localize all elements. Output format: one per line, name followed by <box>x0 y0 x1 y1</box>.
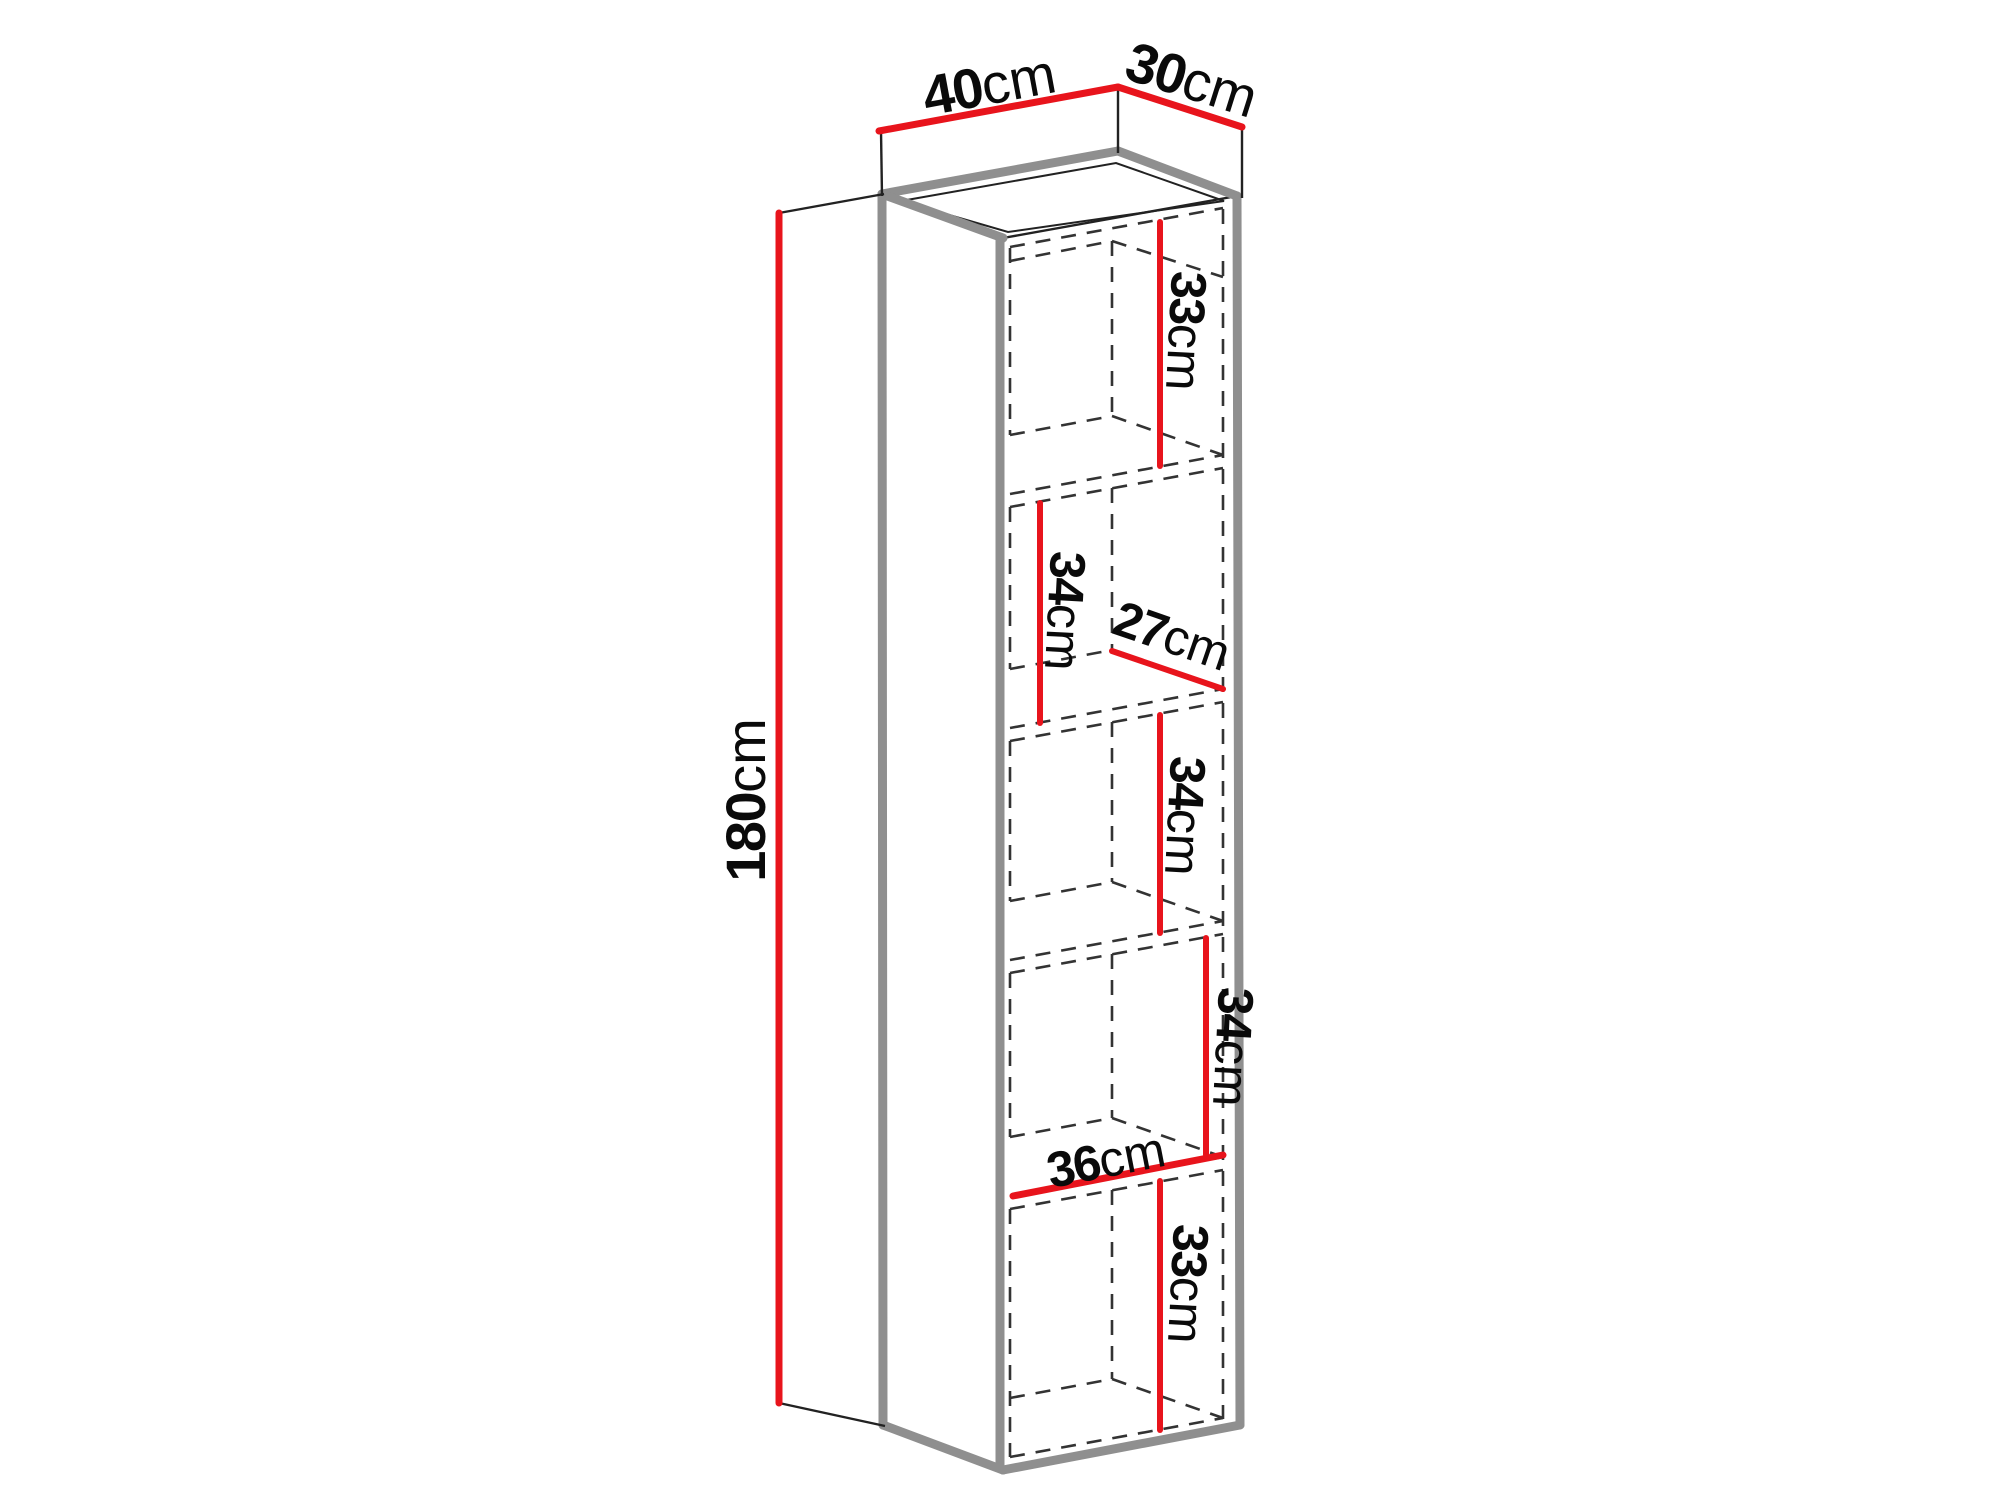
dimension-label-width: 40cm <box>917 41 1060 127</box>
extension-line-height <box>779 194 884 213</box>
furniture-dimension-diagram: 180cm40cm30cm33cm34cm27cm34cm34cm36cm33c… <box>0 0 2000 1500</box>
diagram-canvas: 180cm40cm30cm33cm34cm27cm34cm34cm36cm33c… <box>0 0 2000 1500</box>
dimension-label-compartment-2-height: 34cm <box>1034 550 1096 672</box>
extension-line-height <box>779 1403 885 1426</box>
cabinet-left-face <box>882 194 1003 1470</box>
cabinet-outer-edge <box>1237 196 1240 1425</box>
dimension-label-compartment-4-height: 34cm <box>1202 986 1264 1108</box>
dimension-label-compartment-5-height: 33cm <box>1157 1223 1219 1345</box>
dimension-label-compartment-1-height: 33cm <box>1155 270 1217 392</box>
dimension-label-compartment-3-height: 34cm <box>1154 755 1216 877</box>
cabinet-outer-edge <box>882 194 883 1425</box>
extension-line-width <box>881 131 882 196</box>
dimension-label-height: 180cm <box>714 718 777 882</box>
